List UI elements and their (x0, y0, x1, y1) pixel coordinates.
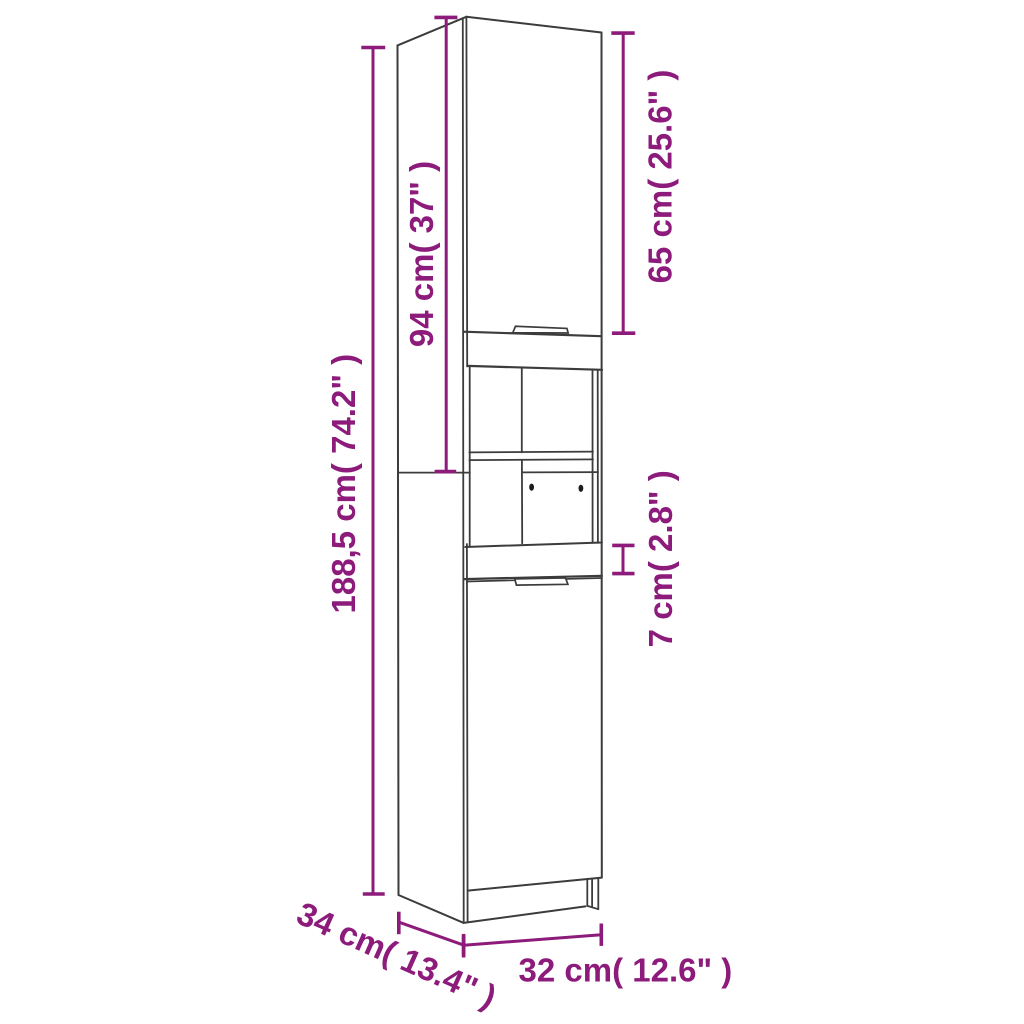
svg-text:34 cm( 13.4" ): 34 cm( 13.4" ) (292, 895, 502, 1016)
svg-text:188,5 cm( 74.2" ): 188,5 cm( 74.2" ) (325, 354, 362, 614)
svg-text:32 cm( 12.6" ): 32 cm( 12.6" ) (519, 952, 733, 989)
svg-text:65 cm( 25.6" ): 65 cm( 25.6" ) (642, 70, 679, 284)
svg-text:7 cm( 2.8" ): 7 cm( 2.8" ) (642, 470, 679, 647)
svg-text:94 cm( 37" ): 94 cm( 37" ) (403, 161, 440, 347)
